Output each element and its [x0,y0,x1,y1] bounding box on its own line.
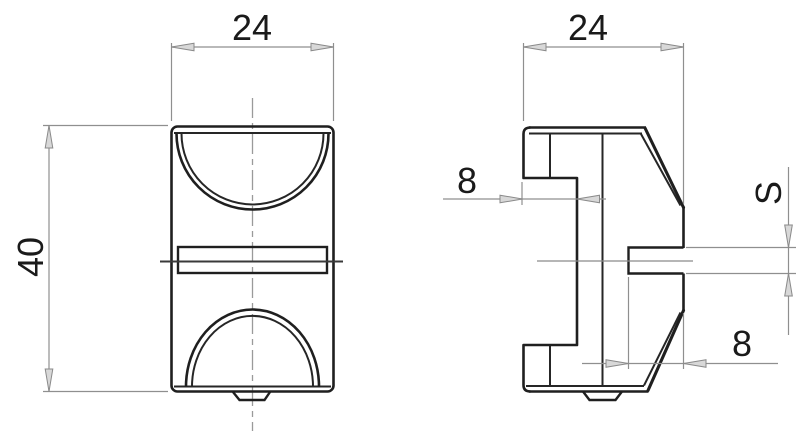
dim-label-front-height: 40 [10,237,51,277]
dim-slot-thickness: S [686,167,796,335]
side-bottom-chamfer-inner [644,313,681,386]
front-bottom-tab [233,392,270,400]
dim-side-slot-depth-arrow-left [606,360,629,368]
dim-slot-thickness-arrow-top [785,225,793,248]
dim-slot-thickness-arrow-bottom [785,274,793,297]
dim-label-side-width: 24 [568,7,608,48]
dim-label-side-slot-depth: 8 [732,323,752,364]
dim-side-step-arrow-right [577,195,600,203]
dim-front-width-arrow-left [172,43,195,51]
dim-side-step-arrow-left [500,195,523,203]
dim-side-slot-depth: 8 [582,277,778,369]
side-view [524,128,694,401]
drawing-page: 24 40 24 [0,0,800,438]
side-bottom-chamfer-outer [648,311,684,391]
dim-side-width-arrow-right [661,43,684,51]
dim-label-slot-thickness: S [748,181,789,205]
dim-label-front-width: 24 [232,7,272,48]
dim-front-height-arrow-bottom [45,369,53,392]
front-view [160,98,343,431]
side-top-chamfer-outer [645,128,684,208]
side-top-chamfer-inner [641,134,681,206]
dim-side-width-arrow-left [524,43,547,51]
dim-front-height: 40 [10,126,168,392]
technical-drawing-canvas: 24 40 24 [0,0,800,438]
dim-label-side-step: 8 [457,160,477,201]
dim-side-slot-depth-arrow-right [684,360,707,368]
dim-front-height-arrow-top [45,126,53,149]
dim-front-width-arrow-right [311,43,334,51]
